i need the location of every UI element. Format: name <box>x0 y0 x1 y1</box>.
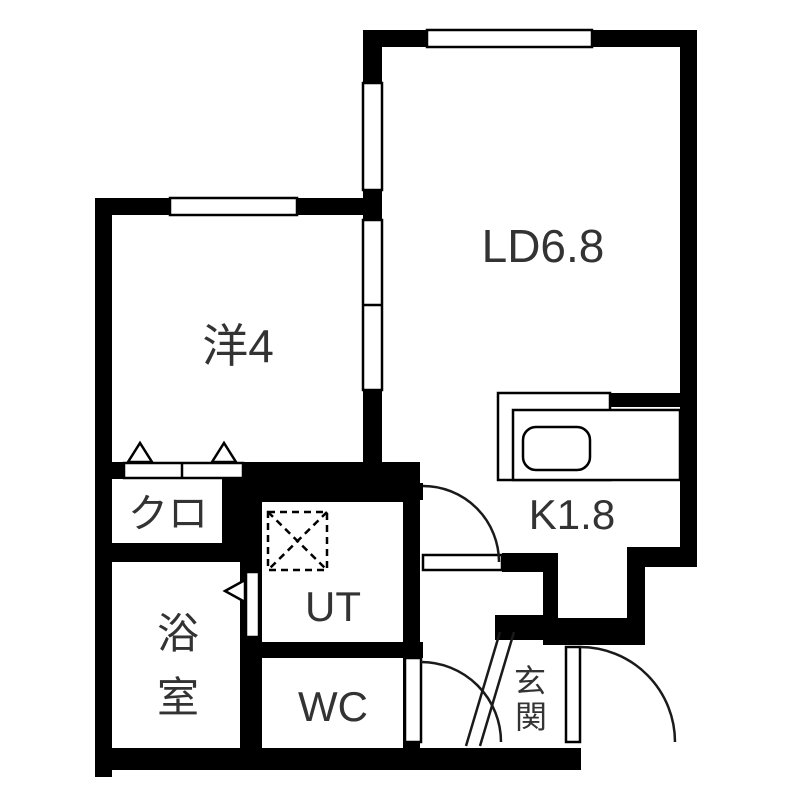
room-label-kitchen: K1.8 <box>529 491 615 538</box>
bathroom-door-triangle-icon <box>225 580 245 602</box>
room-label-utility: UT <box>305 583 361 630</box>
room-label-bathroom-char2: 室 <box>157 674 199 721</box>
window-ld-top-icon <box>427 30 592 47</box>
room-label-closet: クロ <box>128 492 208 536</box>
bathroom-door-leaf-icon <box>246 572 259 637</box>
floor-plan-drawing: LD6.8 洋4 クロ 浴 室 UT WC K1.8 玄 関 <box>0 0 798 800</box>
wall-ld-bottom-stub <box>363 483 423 500</box>
room-label-entrance-char2: 関 <box>515 699 547 735</box>
kitchen-hall-door-leaf-icon <box>423 555 502 570</box>
wall-right-step-horizontal <box>627 547 697 567</box>
kitchen-sink-icon <box>523 427 590 470</box>
wall-entrance-top-left <box>495 615 543 640</box>
wall-partition-middle <box>363 190 382 220</box>
closet-door <box>124 443 243 478</box>
entrance-door <box>566 647 675 742</box>
closet-door-track-icon <box>124 463 243 478</box>
window-ld-left-icon <box>363 83 382 190</box>
wall-outer-right <box>680 30 697 567</box>
wall-entrance-top <box>558 618 645 645</box>
entrance-door-arc-icon <box>580 647 675 742</box>
room-label-living-dining: LD6.8 <box>482 220 605 272</box>
room-label-western-room: 洋4 <box>202 320 274 372</box>
wall-wc-left <box>240 658 262 748</box>
room-label-toilet: WC <box>298 683 368 730</box>
entrance-step-line <box>466 632 500 746</box>
wc-door-leaf-icon <box>405 658 421 742</box>
room-label-bathroom-char1: 浴 <box>157 610 199 657</box>
entrance-door-leaf-icon <box>566 647 580 742</box>
kitchen-hall-door-arc-icon <box>423 486 499 562</box>
wall-partition-upper <box>363 47 382 83</box>
entrance-step <box>466 632 514 746</box>
wall-kitchen-step-vertical <box>543 553 558 645</box>
kitchen-hall-door <box>423 486 502 570</box>
window-west-room-icon <box>170 198 297 215</box>
room-label-entrance-char1: 玄 <box>514 663 546 699</box>
floor-plan-page: LD6.8 洋4 クロ 浴 室 UT WC K1.8 玄 関 <box>0 0 798 800</box>
entrance-step-line <box>480 632 514 746</box>
washing-machine-space <box>268 512 327 570</box>
wall-closet-bottom <box>95 543 258 562</box>
closet-door-triangle-icon <box>128 443 152 462</box>
wall-kitchen-counter-back <box>610 393 680 407</box>
wall-ut-wc-divider <box>262 642 423 658</box>
wall-outer-left <box>95 198 112 777</box>
wc-door-arc-icon <box>421 662 501 742</box>
wc-door <box>405 658 501 742</box>
wall-outer-bottom <box>95 748 581 770</box>
wall-ut-right <box>403 483 420 658</box>
closet-door-triangle-icon <box>212 443 236 462</box>
